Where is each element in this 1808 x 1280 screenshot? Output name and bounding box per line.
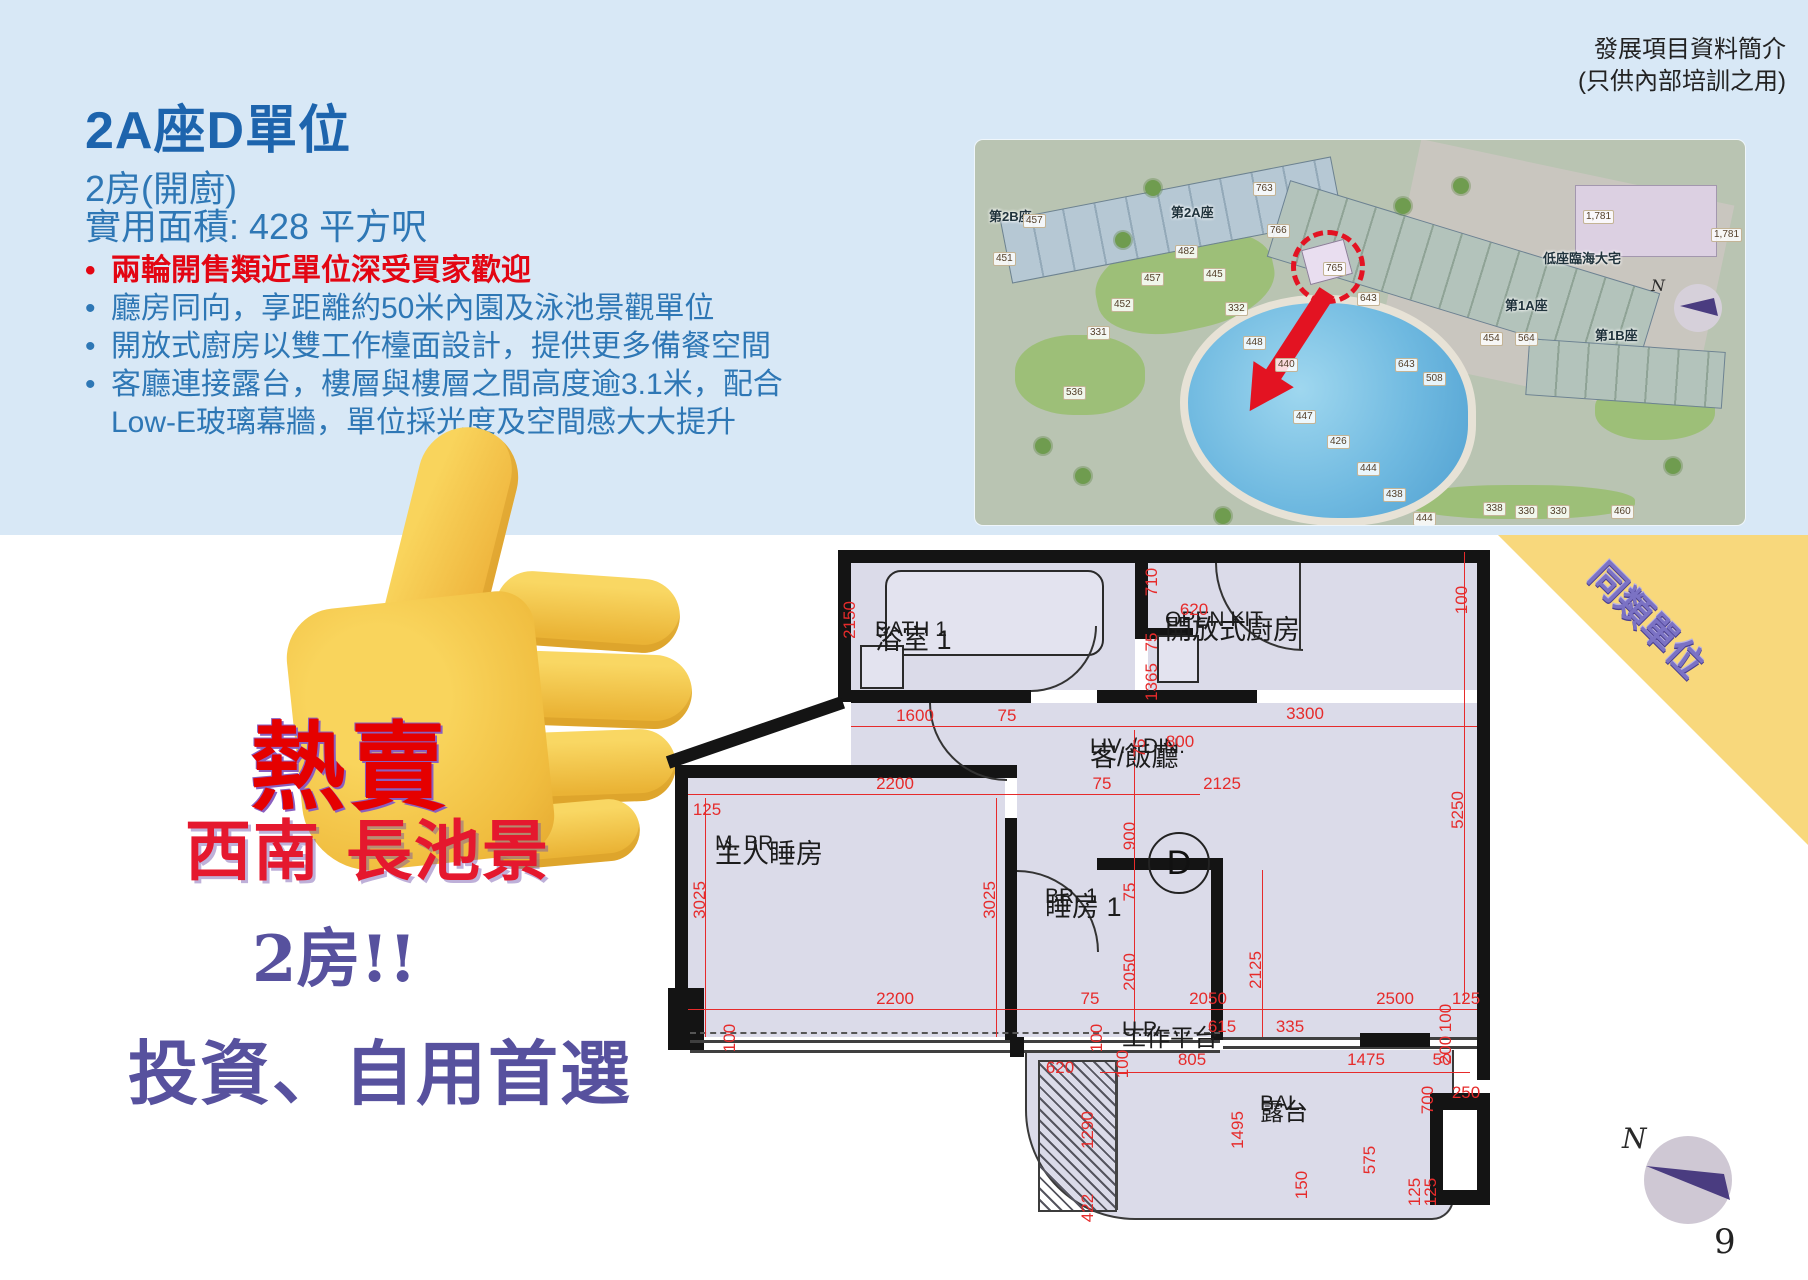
dimension-label: 75 [1142,633,1162,652]
rooms-sticker: 2房!! [252,908,417,1000]
dimension-label: 710 [1142,568,1162,596]
dimension-label: 422 [1078,1194,1098,1222]
map-area-number: 332 [1225,302,1248,316]
map-area-number: 445 [1203,268,1226,282]
dimension-label: 125 [693,800,721,820]
map-area-number: 564 [1515,332,1538,346]
dimension-label: 900 [1120,822,1140,850]
map-area-number: 451 [993,252,1016,266]
map-area-number: 643 [1357,292,1380,306]
dimension-label: 615 [1208,1017,1236,1037]
dimension-label: 250 [1452,1083,1480,1103]
map-area-number: 447 [1293,410,1316,424]
dimension-label: 100 [720,1024,740,1052]
dimension-label: 800 [1166,732,1194,752]
dimension-label: 3025 [690,881,710,919]
bullet-1-text: 兩輪開售類近單位深受買家歡迎 [111,252,531,290]
saleable-area-subtitle: 實用面積: 428 平方呎 [85,198,427,250]
dimension-label: 575 [1360,1146,1380,1174]
bullet-dot: • [85,366,111,404]
map-tower-label: 低座臨海大宅 [1543,248,1621,267]
bullet-dot: • [85,252,111,290]
dimension-label: 2050 [1189,989,1227,1009]
bullet-dot: • [85,328,111,366]
site-map: N 第2B座第2A座第1A座第1B座低座臨海大宅4574514824574453… [975,140,1745,525]
dimension-label: 125 [1452,989,1480,1009]
map-area-number: 440 [1275,358,1298,372]
dimension-label: 100 [1087,1024,1107,1052]
dimension-label: 335 [1276,1017,1304,1037]
map-area-number: 426 [1327,435,1350,449]
map-area-number: 643 [1395,358,1418,372]
header-note: 發展項目資料簡介 (只供內部培訓之用) [1578,34,1786,99]
dimension-label: 1365 [1142,663,1162,701]
map-tower-label: 第2A座 [1171,202,1214,221]
map-area-number: 444 [1357,462,1380,476]
map-area-number: 448 [1243,336,1266,350]
bullet-4-text: 客廳連接露台，樓層與樓層之間高度逾3.1米，配合 [111,366,783,404]
dimension-label: 2200 [876,774,914,794]
dimension-label: 1495 [1228,1111,1248,1149]
dimension-label: 100 [1436,1004,1456,1032]
map-tower-label: 第1A座 [1505,295,1548,314]
map-area-number: 331 [1087,326,1110,340]
dimension-label: 3025 [980,881,1000,919]
bullet-dot: • [85,290,111,328]
dimension-label: 75 [998,706,1017,726]
dimension-label: 1290 [1078,1111,1098,1149]
dimension-label: 75 [1081,989,1100,1009]
map-area-number: 457 [1023,214,1046,228]
map-area-number: 330 [1515,505,1538,519]
corner-banner: 同類單位 首兩輪推售近清 [1498,535,1808,845]
dimension-label: 75 [1093,774,1112,794]
bullet-3-text: 開放式廚房以雙工作檯面設計，提供更多備餐空間 [111,328,771,366]
map-area-number: 1,781 [1583,210,1614,224]
dimension-label: 1600 [896,706,934,726]
map-area-number: 338 [1483,502,1506,516]
map-area-number: 763 [1253,182,1276,196]
dimension-label: 100 [1113,1050,1133,1078]
dimension-label: 2500 [1376,989,1414,1009]
selling-points-list: •兩輪開售類近單位深受買家歡迎 •廳房同向，享距離約50米內園及泳池景觀單位 •… [85,252,865,442]
page-title: 2A座D單位 [85,88,351,163]
map-area-number: 1,781 [1711,228,1742,242]
dimension-label: 620 [1180,600,1208,620]
map-area-number: 508 [1423,372,1446,386]
dimension-labels-layer: 2150710620751365100160075330075800220075… [660,540,1490,1252]
dimension-label: 620 [1046,1058,1074,1078]
map-area-number: 766 [1267,224,1290,238]
dimension-label: 75 [1120,883,1140,902]
dimension-label: 2125 [1203,774,1241,794]
bullet-3: •開放式廚房以雙工作檯面設計，提供更多備餐空間 [85,328,865,366]
map-area-number: 438 [1383,488,1406,502]
dimension-label: 150 [1292,1171,1312,1199]
dimension-label: 2125 [1246,951,1266,989]
compass-icon: N [1622,1122,1742,1232]
dimension-label: 2150 [840,601,860,639]
dimension-label: 100 [1452,586,1472,614]
bullet-1: •兩輪開售類近單位深受買家歡迎 [85,252,865,290]
map-area-number: 460 [1611,505,1634,519]
map-area-number: 482 [1175,245,1198,259]
dimension-label: 2050 [1120,953,1140,991]
pitch-sticker: 投資、自用首選 [128,1018,632,1119]
header-note-line2: (只供內部培訓之用) [1578,66,1786,98]
map-area-number: 452 [1111,298,1134,312]
dimension-label: 700 [1418,1086,1438,1114]
dimension-label: 3300 [1286,704,1324,724]
bullet-4: •客廳連接露台，樓層與樓層之間高度逾3.1米，配合 [85,366,865,404]
page-number: 9 [1714,1222,1736,1262]
view-sticker: 西南 長池景 [185,798,550,894]
dimension-label: 5250 [1448,791,1468,829]
corner-banner-line1: 同類單位 [1579,549,1718,688]
map-area-number: 457 [1141,272,1164,286]
bullet-2: •廳房同向，享距離約50米內園及泳池景觀單位 [85,290,865,328]
map-area-number: 444 [1413,512,1436,525]
map-tower-label: 第1B座 [1595,325,1638,344]
map-area-number: 765 [1323,262,1346,276]
map-area-number: 454 [1480,332,1503,346]
dimension-label: 50 [1433,1050,1452,1070]
header-note-line1: 發展項目資料簡介 [1578,34,1786,66]
map-area-number: 330 [1547,505,1570,519]
map-labels-layer: 第2B座第2A座第1A座第1B座低座臨海大宅457451482457445332… [975,140,1745,525]
dimension-label: 75 [1130,739,1150,758]
bullet-2-text: 廳房同向，享距離約50米內園及泳池景觀單位 [111,290,714,328]
dimension-label: 1475 [1347,1050,1385,1070]
map-area-number: 536 [1063,386,1086,400]
dimension-label: 2200 [876,989,914,1009]
dimension-label: 125 [1421,1178,1441,1206]
dimension-label: 805 [1178,1050,1206,1070]
floor-plan: 浴室 1 BATH 1 開放式廚房 OPEN KIT. 客/飯廳 LIV. / … [660,540,1490,1252]
